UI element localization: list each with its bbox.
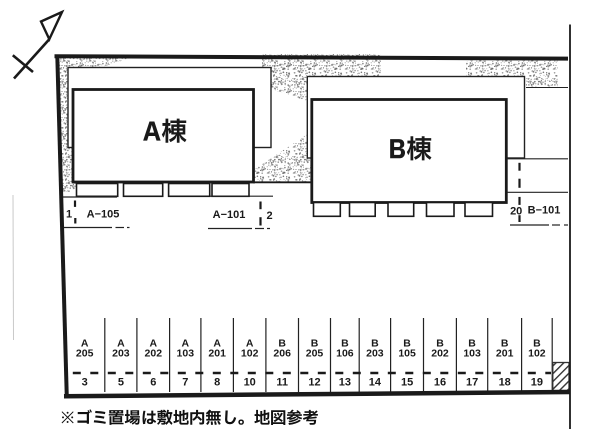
svg-text:3: 3 bbox=[82, 377, 88, 389]
svg-text:16: 16 bbox=[434, 377, 446, 389]
svg-text:102: 102 bbox=[528, 348, 546, 360]
svg-text:103: 103 bbox=[463, 348, 481, 360]
svg-text:205: 205 bbox=[76, 348, 94, 360]
svg-text:105: 105 bbox=[398, 348, 416, 360]
svg-text:203: 203 bbox=[366, 348, 384, 360]
svg-text:102: 102 bbox=[241, 348, 259, 360]
svg-text:17: 17 bbox=[466, 377, 478, 389]
svg-text:B−101: B−101 bbox=[528, 205, 561, 217]
svg-text:12: 12 bbox=[308, 377, 320, 389]
svg-text:206: 206 bbox=[273, 348, 291, 360]
svg-text:106: 106 bbox=[336, 348, 354, 360]
svg-text:1: 1 bbox=[66, 208, 72, 220]
svg-text:201: 201 bbox=[208, 348, 226, 360]
svg-text:7: 7 bbox=[182, 377, 188, 389]
svg-text:202: 202 bbox=[431, 348, 449, 360]
svg-text:19: 19 bbox=[531, 377, 543, 389]
svg-text:14: 14 bbox=[369, 377, 382, 389]
svg-text:A−101: A−101 bbox=[213, 209, 246, 221]
svg-text:202: 202 bbox=[145, 348, 163, 360]
svg-text:8: 8 bbox=[214, 377, 220, 389]
svg-text:15: 15 bbox=[401, 377, 413, 389]
svg-text:18: 18 bbox=[499, 377, 511, 389]
svg-text:13: 13 bbox=[339, 377, 351, 389]
svg-text:205: 205 bbox=[306, 348, 324, 360]
svg-text:2: 2 bbox=[266, 210, 272, 222]
svg-text:6: 6 bbox=[150, 377, 156, 389]
svg-text:A−105: A−105 bbox=[87, 208, 120, 220]
svg-text:10: 10 bbox=[244, 377, 256, 389]
svg-text:103: 103 bbox=[177, 348, 195, 360]
svg-text:201: 201 bbox=[496, 348, 514, 360]
svg-text:203: 203 bbox=[112, 348, 130, 360]
svg-text:11: 11 bbox=[276, 377, 288, 389]
svg-text:20: 20 bbox=[510, 206, 522, 218]
svg-text:5: 5 bbox=[118, 377, 124, 389]
